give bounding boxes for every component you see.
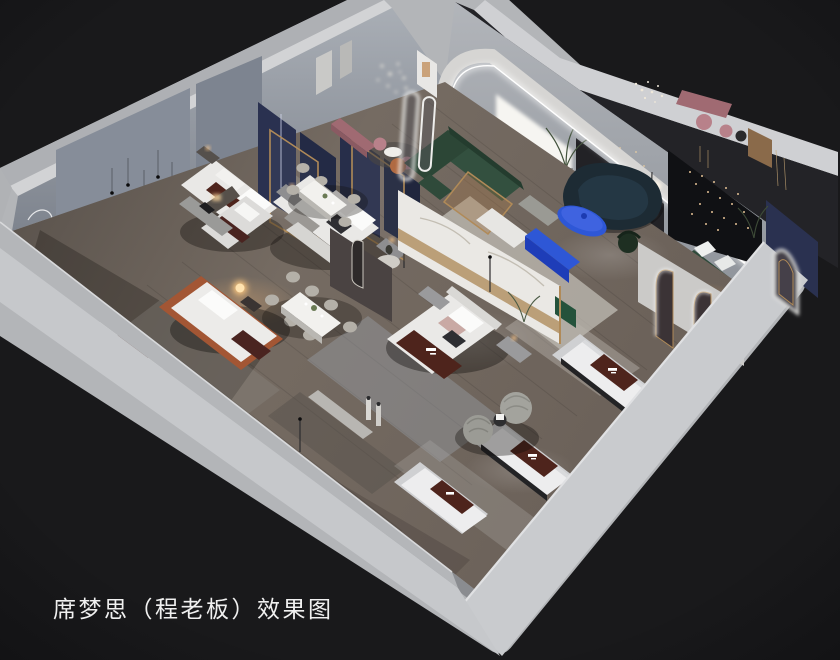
vignette (0, 0, 840, 660)
render-caption: 席梦思（程老板）效果图 (53, 590, 334, 624)
showroom-render: 席梦思（程老板）效果图 (0, 0, 840, 660)
render-scene (0, 0, 840, 660)
